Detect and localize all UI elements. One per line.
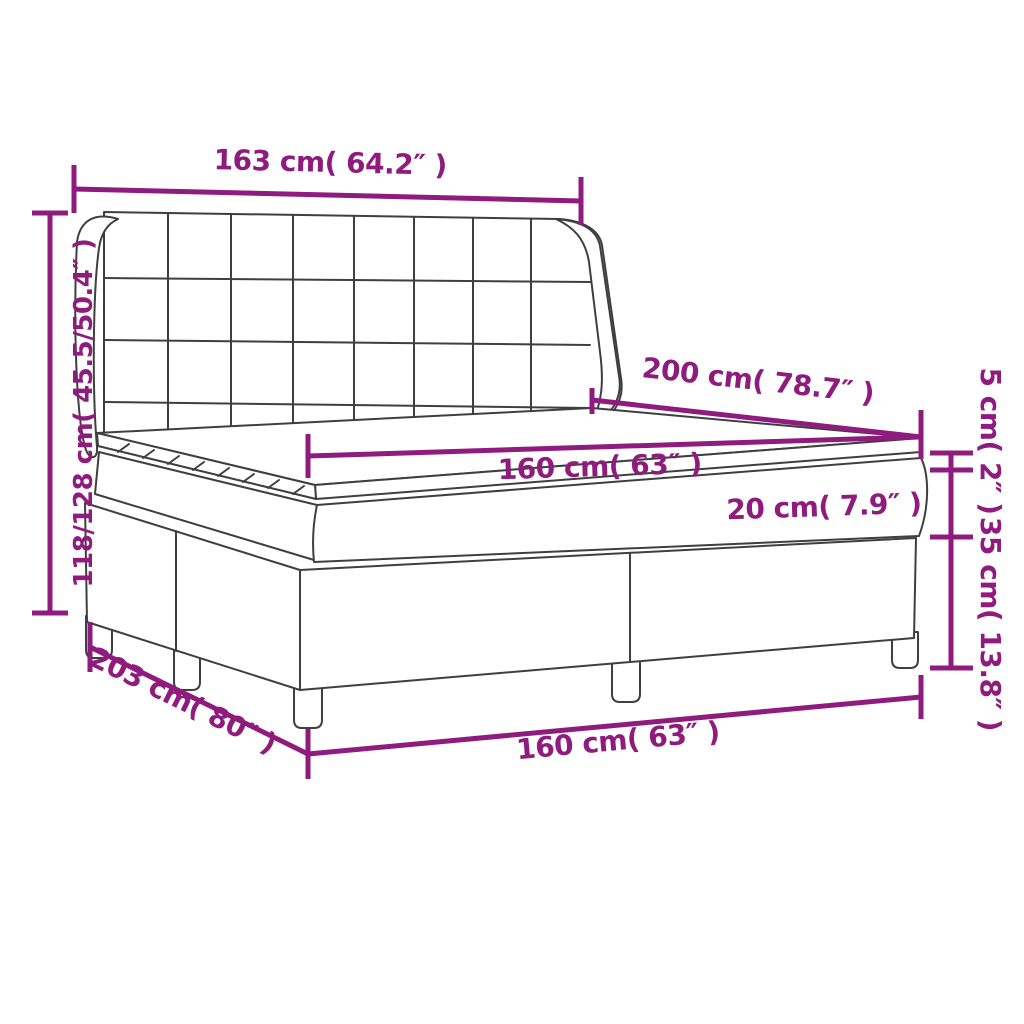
label-mattress-height: 20 cm( 7.9″ ) <box>726 487 922 527</box>
label-overall-height: 118/128 cm( 45.5/50.4″ ) <box>69 239 99 588</box>
label-topper-height: 5 cm( 2″ ) <box>974 367 1007 514</box>
label-mattress-width: 160 cm( 63″ ) <box>497 447 702 486</box>
label-base-height: 35 cm( 13.8″ ) <box>974 517 1007 731</box>
bed-dimension-diagram: 163 cm( 64.2″ ) 118/128 cm( 45.5/50.4″ )… <box>0 0 1024 1024</box>
label-headboard-width: 163 cm( 64.2″ ) <box>213 143 447 182</box>
base-front-face <box>300 538 916 690</box>
dim-right-stack <box>930 453 973 668</box>
dim-overall-height <box>32 213 68 613</box>
label-bed-length: 200 cm( 78.7″ ) <box>640 351 875 410</box>
label-base-width: 160 cm( 63″ ) <box>515 715 721 766</box>
